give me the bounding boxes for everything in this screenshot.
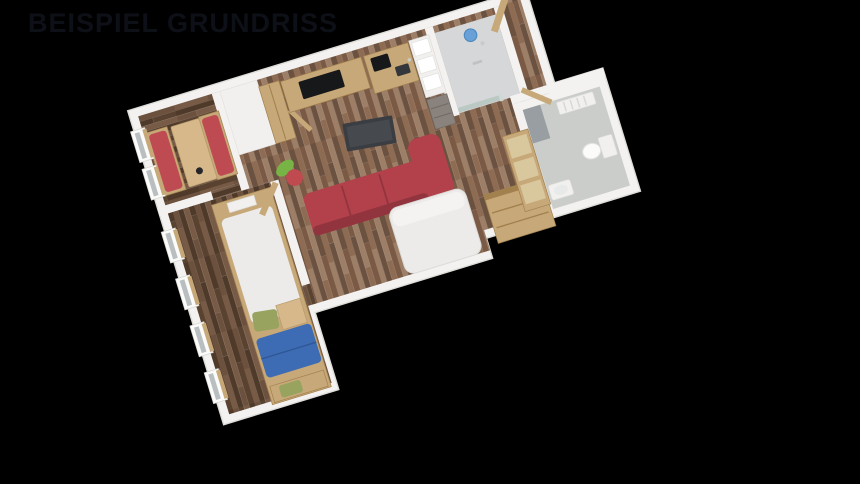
alcove-green-pillow bbox=[252, 309, 280, 332]
apartment-plan-group bbox=[124, 0, 670, 426]
floorplan-render bbox=[0, 0, 860, 484]
floorplan-stage: BEISPIEL GRUNDRISS bbox=[0, 0, 860, 484]
